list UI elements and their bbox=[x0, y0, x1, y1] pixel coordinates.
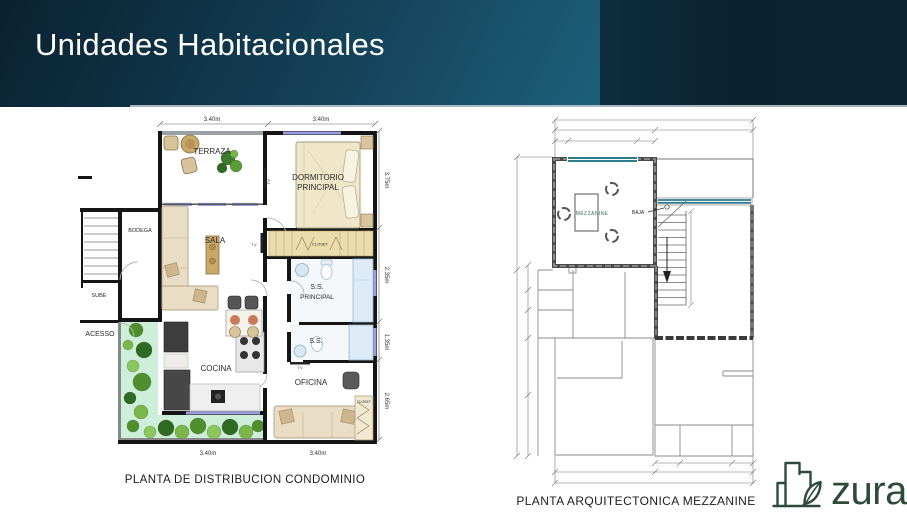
room-label-sube: SUBE bbox=[92, 293, 107, 299]
room-label-terraza: TERRAZA bbox=[193, 147, 231, 156]
mezz-dimension-lines bbox=[514, 117, 756, 459]
sala-furniture bbox=[162, 206, 219, 310]
room-label-mezzanine: MEZZANINE bbox=[576, 211, 609, 217]
dormitorio-furniture bbox=[296, 136, 373, 228]
label-tv-b: T.V bbox=[251, 243, 257, 247]
condominio-floor-plan: TERRAZA DORMITORIO PRINCIPAL BODEGA SUBE… bbox=[78, 110, 398, 500]
right-plan-caption: PLANTA ARQUITECTONICA MEZZANINE bbox=[495, 494, 777, 508]
room-label-ss-principal-1: S.S. bbox=[310, 284, 323, 291]
room-label-oficina: OFICINA bbox=[295, 378, 328, 387]
stairs-baja bbox=[658, 201, 694, 308]
lower-floor-outline bbox=[538, 266, 753, 456]
mezzanine-floor-plan: MEZZANINE BAJA bbox=[495, 115, 775, 515]
label-closet-top: CLOSET bbox=[312, 242, 329, 247]
room-label-dormitorio-2: PRINCIPAL bbox=[297, 183, 339, 192]
baja-annotation: BAJA bbox=[632, 205, 669, 216]
label-baja: BAJA bbox=[632, 210, 645, 216]
left-plan-caption: PLANTA DE DISTRIBUCION CONDOMINIO bbox=[80, 474, 410, 486]
room-label-acesso: ACESSO bbox=[85, 331, 115, 338]
page-title: Unidades Habitacionales bbox=[35, 27, 385, 63]
dim-top-right: 3.40m bbox=[313, 117, 330, 123]
dim-bottom-right: 3.40m bbox=[310, 451, 327, 457]
banner-gradient-right bbox=[600, 0, 907, 107]
upper-right-outline bbox=[655, 159, 753, 205]
terraza-divider-line bbox=[162, 204, 263, 206]
room-label-bodega: BODEGA bbox=[128, 228, 152, 234]
room-label-cocina: COCINA bbox=[200, 364, 232, 373]
logo-wordmark: zura bbox=[831, 472, 907, 510]
room-label-ss: S.S. bbox=[309, 338, 322, 345]
dim-right-dormitorio: 3.75m bbox=[383, 172, 389, 189]
label-closet-right: CLOSET bbox=[357, 400, 372, 404]
stairs-sube bbox=[84, 218, 118, 274]
cocina-furniture bbox=[164, 296, 264, 411]
dim-top-left: 3.40m bbox=[204, 117, 221, 123]
banner-divider-line bbox=[130, 105, 907, 107]
zura-logo: zura bbox=[770, 452, 907, 510]
dim-bottom-left: 3.40m bbox=[200, 451, 217, 457]
room-label-ss-principal-2: PRINCIPAL bbox=[300, 294, 334, 301]
slide: Unidades Habitacionales bbox=[0, 0, 907, 517]
zura-building-leaf-icon bbox=[770, 452, 826, 510]
dim-right-ss: 1.35m bbox=[383, 334, 389, 351]
room-label-sala: SALA bbox=[205, 236, 226, 245]
room-label-dormitorio-1: DORMITORIO bbox=[292, 173, 344, 182]
label-tv-a: T.V bbox=[267, 179, 271, 185]
mezzanine-walls bbox=[554, 156, 753, 339]
dim-right-oficina: 2.65m bbox=[383, 393, 389, 410]
header-banner: Unidades Habitacionales bbox=[0, 0, 907, 107]
mezz-bottom-dims bbox=[552, 456, 756, 486]
dim-right-ss-principal: 2.35m bbox=[383, 267, 389, 284]
label-tv-c: T.V bbox=[297, 366, 303, 370]
